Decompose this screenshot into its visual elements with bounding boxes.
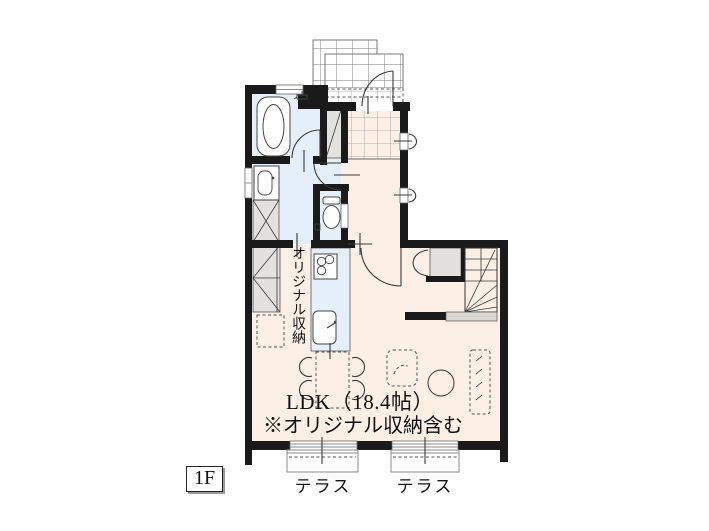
- terrace-label-left: テラス: [288, 472, 358, 497]
- storage-label: オリジナル収納: [290, 246, 304, 356]
- stair-closet: [430, 248, 461, 277]
- floor-label: 1F: [186, 466, 223, 492]
- ldk-note: ※オリジナル収納含む: [243, 409, 483, 438]
- terraces: [287, 450, 459, 472]
- stair-landing: [446, 312, 497, 321]
- floor-plan: LDK（18.4帖） ※オリジナル収納含む オリジナル収納 テラス テラス 1F: [0, 0, 709, 531]
- terrace-label-right: テラス: [391, 472, 459, 497]
- floor-plan-drawing: [0, 0, 709, 531]
- vanity-icon: [254, 166, 279, 200]
- bathtub-icon: [257, 97, 290, 156]
- sink-icon: [313, 311, 336, 344]
- entrance-tiles: [348, 110, 400, 159]
- stove-icon: [314, 254, 337, 279]
